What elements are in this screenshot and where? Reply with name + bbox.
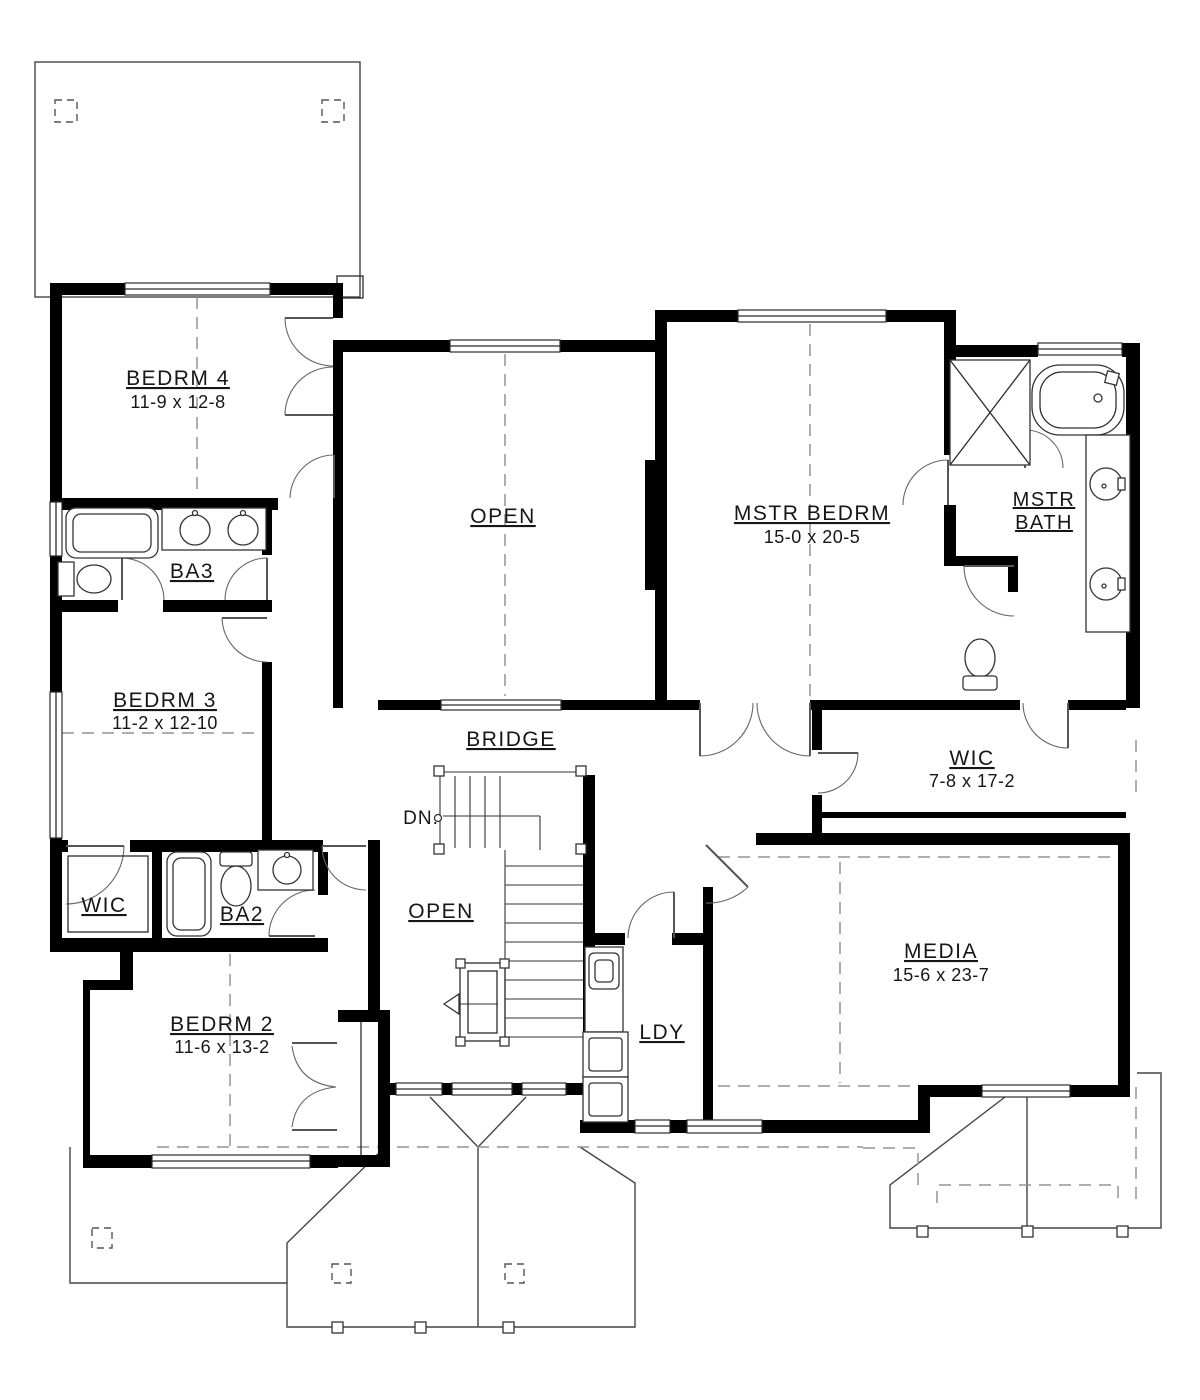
- stairs-direction-arrow: [444, 994, 459, 1014]
- room-dims-bedrm3: 11-2 x 12-10: [112, 713, 218, 733]
- room-dims-mstr-bedrm: 15-0 x 20-5: [764, 527, 861, 547]
- window: [152, 1155, 310, 1168]
- room-label-open-lower: OPEN: [408, 900, 474, 923]
- room-label-media: MEDIA: [904, 940, 978, 963]
- room-label-bedrm3: BEDRM 3: [113, 689, 217, 712]
- room-dims-media: 15-6 x 23-7: [893, 965, 990, 985]
- ba3-sink: [228, 515, 258, 545]
- floor-plan: BEDRM 4 11-9 x 12-8 BA3 BEDRM 3 11-2 x 1…: [0, 0, 1200, 1400]
- window: [125, 283, 270, 295]
- room-dims-wic-right: 7-8 x 17-2: [929, 771, 1015, 791]
- room-dims-bedrm4: 11-9 x 12-8: [130, 392, 225, 412]
- room-label-wic-right: WIC: [949, 747, 994, 770]
- ldy-sink: [585, 947, 623, 1032]
- room-label-mstr-bath-2: BATH: [1015, 512, 1073, 534]
- window: [50, 502, 62, 556]
- room-label-ldy: LDY: [639, 1021, 684, 1044]
- window: [738, 310, 886, 322]
- mstr-tub: [1032, 365, 1124, 435]
- window: [635, 1120, 670, 1133]
- window: [1038, 343, 1122, 355]
- bridge-rail-window: [441, 700, 561, 710]
- ba2-sink: [258, 850, 313, 890]
- room-label-open-upper: OPEN: [470, 505, 536, 528]
- ba3-toilet: [58, 562, 74, 596]
- room-dims-bedrm2: 11-6 x 13-2: [174, 1037, 269, 1057]
- floor-plan-canvas: BEDRM 4 11-9 x 12-8 BA3 BEDRM 3 11-2 x 1…: [0, 0, 1200, 1400]
- mstr-toilet: [963, 639, 997, 690]
- window: [522, 1083, 566, 1095]
- stairs-down-label: DN.: [403, 808, 439, 829]
- room-label-ba3: BA3: [170, 560, 214, 583]
- mstr-vanity: [1086, 435, 1130, 632]
- ldy-washer: [583, 1032, 628, 1077]
- ba2-toilet: [220, 852, 252, 906]
- room-labels: BEDRM 4 11-9 x 12-8 BA3 BEDRM 3 11-2 x 1…: [81, 367, 1075, 1057]
- window: [452, 1083, 512, 1095]
- window: [50, 692, 62, 838]
- ba3-sink: [180, 515, 210, 545]
- room-label-bedrm2: BEDRM 2: [170, 1013, 274, 1036]
- window: [450, 340, 560, 352]
- mstr-shower: [950, 360, 1030, 465]
- window: [982, 1085, 1070, 1097]
- window: [396, 1083, 442, 1095]
- room-label-mstr-bedrm: MSTR BEDRM: [734, 502, 890, 525]
- window: [687, 1120, 762, 1133]
- room-label-bridge: BRIDGE: [466, 728, 556, 751]
- ldy-dryer: [583, 1077, 628, 1122]
- room-label-wic-left: WIC: [81, 894, 126, 917]
- room-label-bedrm4: BEDRM 4: [126, 367, 230, 390]
- room-label-mstr-bath-1: MSTR: [1013, 489, 1076, 511]
- room-label-ba2: BA2: [220, 903, 264, 926]
